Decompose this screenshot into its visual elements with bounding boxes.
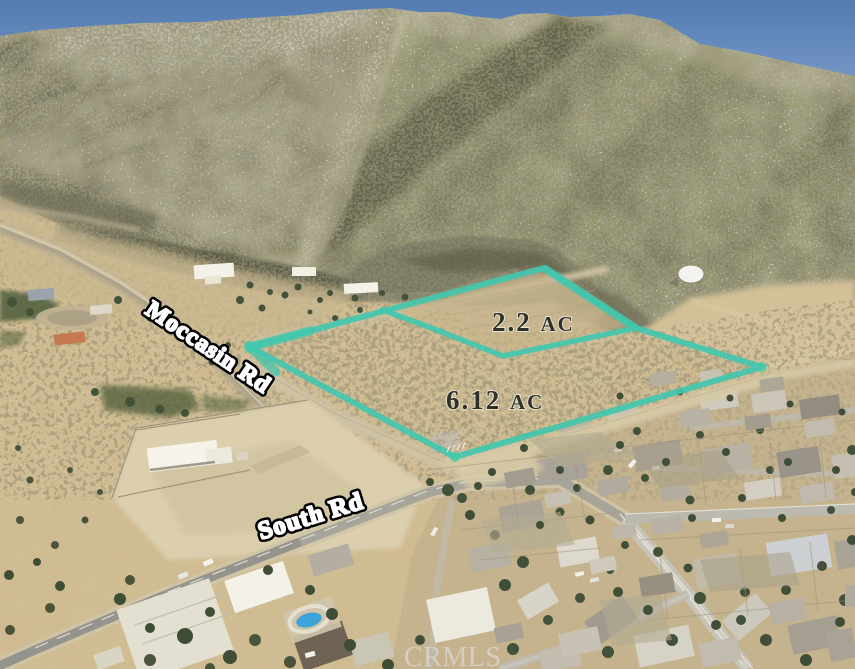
svg-text:6.12 AC: 6.12 AC: [446, 385, 544, 415]
svg-text:2.2 AC: 2.2 AC: [492, 307, 575, 337]
svg-text:CRMLS: CRMLS: [404, 642, 501, 669]
